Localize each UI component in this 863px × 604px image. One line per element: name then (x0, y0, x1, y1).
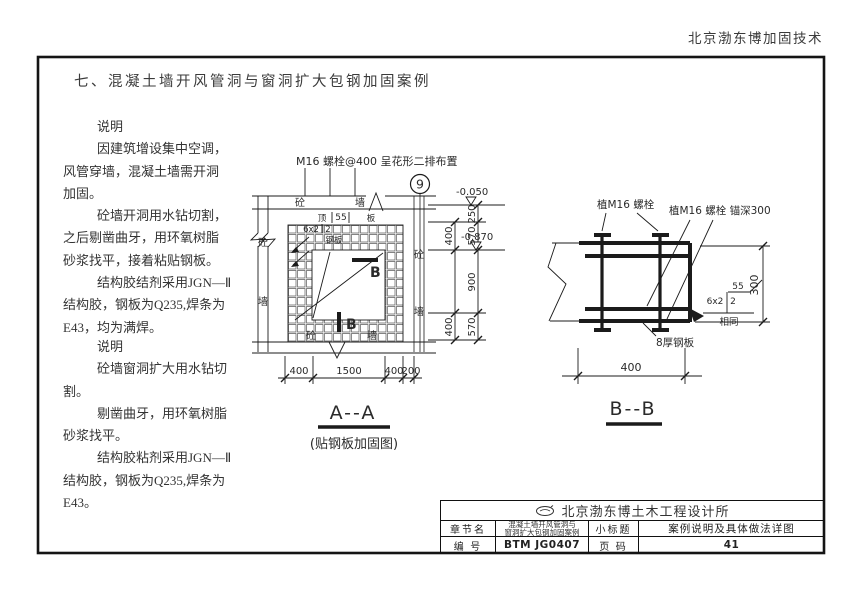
axis-number: 9 (416, 177, 424, 192)
weld-55: 55 (732, 282, 743, 292)
wall-bottom-concrete: 砼 (306, 329, 316, 342)
weld-count: 2 (325, 225, 330, 235)
bolt-heads (594, 235, 669, 330)
wall-left-wall: 墙 (258, 295, 268, 308)
section-letter-b-upper: B (370, 265, 381, 281)
steel-plates (579, 243, 690, 322)
subtitle-value: 案例说明及具体做法详图 (639, 521, 824, 536)
drawing-sheet-page: 北京渤东博加固技术 七、混凝土墙开风管洞与窗洞扩大包钢加固案例 说明 因建筑增设… (0, 0, 863, 604)
dim-inner-400-bot: 400 (444, 317, 455, 336)
anchor-label: 植M16 螺栓 锚深300 (669, 204, 771, 217)
caption-a-sub: (贴钢板加固图) (310, 437, 398, 452)
institute-logo (535, 505, 555, 517)
level-mark-top (466, 197, 476, 205)
subtitle-label: 小标题 (589, 521, 639, 536)
dim-outer-570-top: 570 (467, 226, 478, 245)
slab-label-right: 板 (367, 213, 376, 224)
wall-bottom-wall: 墙 (367, 329, 377, 342)
plate-thickness-label: 8厚钢板 (656, 336, 695, 349)
caption-b: B--B (609, 398, 656, 420)
chapter-name-value: 混凝土墙开风管洞与 窗洞扩大包钢加固案例 (496, 521, 589, 536)
wall-left-concrete: 砼 (258, 236, 268, 249)
band-label-wall: 墙 (355, 196, 365, 209)
weld-size: 6x2 (303, 225, 319, 235)
bolt-label: 植M16 螺栓 (597, 198, 655, 211)
band-label-concrete: 砼 (295, 196, 305, 209)
through-bolts (602, 233, 660, 332)
weld-same: 相同 (719, 316, 738, 328)
dim-bottom-400-left: 400 (289, 366, 308, 377)
dim-outer-570-bot: 570 (467, 317, 478, 336)
dim-bottom-1500: 1500 (336, 366, 361, 377)
dim-outer-900: 900 (467, 272, 478, 291)
section-letter-b-lower: B (346, 317, 357, 333)
weld-size-b: 6x2 (707, 297, 724, 307)
level-value-top: -0.050 (456, 187, 488, 198)
chapter-line-2: 窗洞扩大包钢加固案例 (505, 529, 580, 537)
dim-bottom-200: 200 (401, 366, 420, 377)
dim-side-300: 300 (748, 275, 761, 296)
chapter-name-label: 章节名 (441, 521, 496, 536)
dim-bottom-400-b: 400 (621, 361, 642, 374)
title-block-company-row: 北京渤东博土木工程设计所 (441, 501, 824, 521)
title-block-row-3: 编 号 BTM JG0407 页 码 41 (441, 537, 824, 553)
dim-55: 55 (335, 213, 346, 223)
title-block: 北京渤东博土木工程设计所 章节名 混凝土墙开风管洞与 窗洞扩大包钢加固案例 小标… (440, 500, 824, 553)
page-label: 页 码 (589, 537, 639, 553)
title-block-row-2: 章节名 混凝土墙开风管洞与 窗洞扩大包钢加固案例 小标题 案例说明及具体做法详图 (441, 521, 824, 537)
number-label: 编 号 (441, 537, 496, 553)
page-number: 41 (639, 537, 824, 553)
plate-label: 钢板 (325, 235, 343, 246)
wall-right-wall: 墙 (414, 305, 424, 318)
institute-name: 北京渤东博土木工程设计所 (561, 501, 729, 520)
slab-label-left: 顶 (318, 214, 327, 224)
dim-inner-400-top: 400 (444, 226, 455, 245)
dim-outer-250: 250 (467, 204, 478, 223)
wall-right-concrete: 砼 (414, 248, 424, 261)
weld-count-b: 2 (730, 297, 736, 307)
caption-a: A--A (330, 402, 377, 424)
drawing-number: BTM JG0407 (496, 537, 589, 553)
fig-a-top-note: M16 螺栓@400 呈花形二排布置 (296, 154, 457, 168)
